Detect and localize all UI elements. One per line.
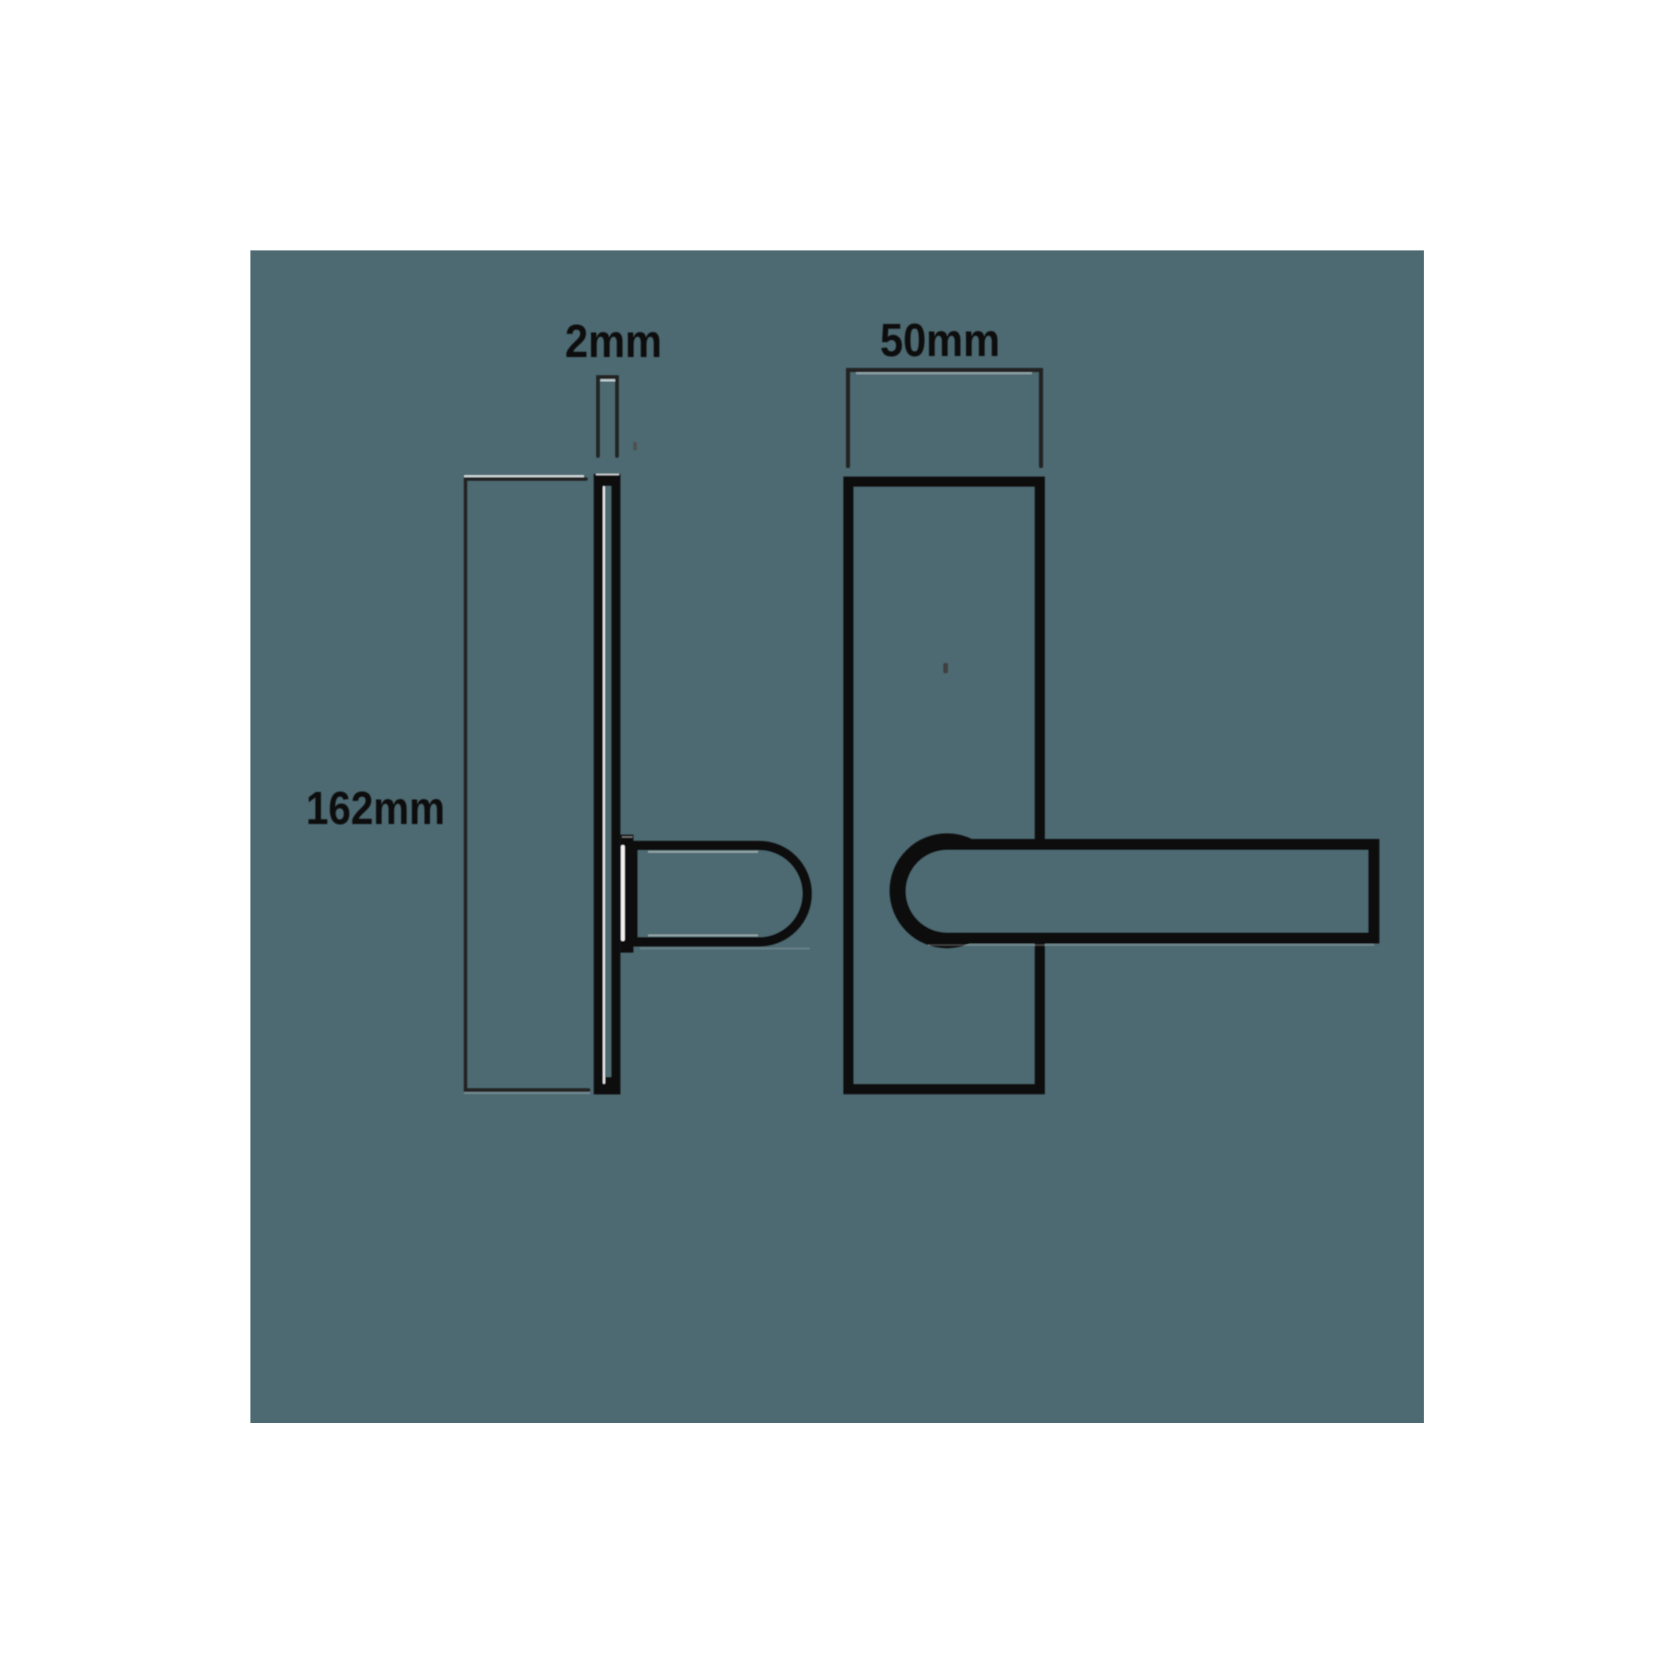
svg-text:2mm: 2mm (565, 315, 662, 367)
svg-text:162mm: 162mm (306, 782, 445, 834)
svg-text:50mm: 50mm (880, 314, 1000, 366)
